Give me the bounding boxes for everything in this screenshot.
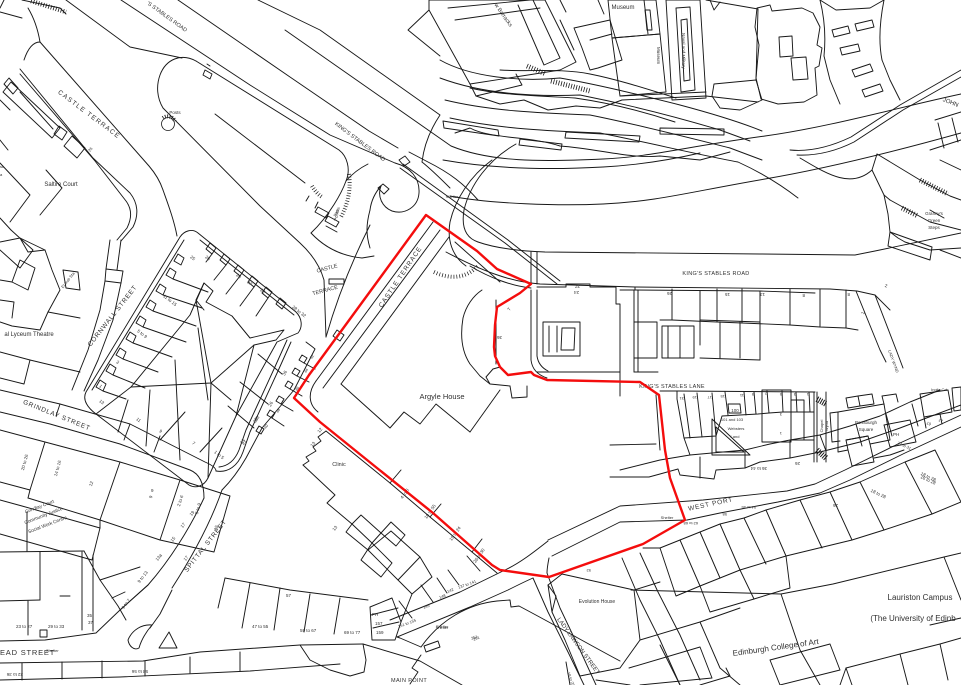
svg-text:Saltire Court: Saltire Court: [44, 182, 78, 188]
svg-text:Green: Green: [928, 218, 941, 223]
svg-text:31: 31: [679, 396, 684, 401]
svg-text:Clinic: Clinic: [332, 462, 346, 468]
svg-text:58: 58: [722, 512, 727, 517]
svg-text:Inglis Crt: Inglis Crt: [931, 387, 948, 392]
svg-text:Land: Land: [731, 434, 740, 439]
svg-text:15: 15: [720, 394, 725, 399]
svg-text:54 to 56: 54 to 56: [741, 505, 756, 510]
svg-text:MAIN POINT: MAIN POINT: [391, 678, 427, 684]
svg-text:PH: PH: [372, 612, 378, 617]
svg-text:23 to 27: 23 to 27: [16, 624, 33, 629]
svg-text:26: 26: [832, 503, 838, 508]
svg-text:Museum: Museum: [656, 47, 661, 65]
svg-text:36 to 44: 36 to 44: [750, 466, 767, 471]
svg-text:29 to 33: 29 to 33: [48, 624, 65, 629]
svg-text:37: 37: [88, 620, 94, 625]
svg-text:92: 92: [586, 568, 591, 573]
svg-text:62 to 68: 62 to 68: [683, 521, 698, 526]
svg-text:Shelter: Shelter: [661, 515, 674, 520]
svg-text:Naval and Military: Naval and Military: [681, 33, 686, 70]
svg-text:KING'S STABLES ROAD: KING'S STABLES ROAD: [682, 271, 749, 277]
svg-text:19: 19: [692, 395, 697, 400]
svg-text:(The University of Edinb: (The University of Edinb: [870, 614, 956, 623]
svg-text:Posts: Posts: [169, 110, 181, 115]
svg-text:35: 35: [87, 613, 93, 618]
svg-text:101 and 103: 101 and 103: [721, 417, 744, 422]
svg-text:Argyle House: Argyle House: [419, 392, 464, 401]
svg-text:17: 17: [707, 395, 712, 400]
svg-text:Granny's: Granny's: [925, 211, 944, 216]
svg-text:69 to 77: 69 to 77: [344, 630, 361, 635]
svg-text:Shelter: Shelter: [436, 624, 449, 629]
svg-text:PH: PH: [893, 432, 899, 437]
svg-text:37: 37: [574, 284, 580, 289]
svg-text:Wynd: Wynd: [824, 421, 829, 431]
svg-text:Shelter: Shelter: [46, 648, 59, 653]
svg-text:159: 159: [376, 630, 384, 635]
svg-text:24: 24: [573, 290, 579, 295]
svg-text:22 to 36: 22 to 36: [6, 672, 23, 677]
svg-text:36: 36: [496, 335, 502, 340]
svg-text:57: 57: [286, 593, 292, 598]
svg-text:100: 100: [731, 408, 739, 413]
svg-text:Museum: Museum: [611, 5, 634, 11]
svg-text:Square: Square: [859, 427, 874, 432]
svg-text:15: 15: [724, 292, 730, 297]
svg-text:26: 26: [794, 461, 800, 466]
svg-text:58 to 56: 58 to 56: [131, 669, 148, 674]
svg-text:Evolution House: Evolution House: [579, 599, 616, 605]
svg-text:157: 157: [375, 621, 383, 626]
svg-text:Websters: Websters: [728, 426, 745, 431]
svg-text:47 to 55: 47 to 55: [252, 624, 269, 629]
svg-text:59 to 67: 59 to 67: [300, 628, 317, 633]
svg-text:Steps: Steps: [928, 225, 940, 230]
svg-text:Shelter: Shelter: [446, 194, 459, 199]
svg-text:al Lyceum Theatre: al Lyceum Theatre: [4, 332, 54, 338]
svg-text:Lauriston Campus: Lauriston Campus: [888, 593, 953, 602]
